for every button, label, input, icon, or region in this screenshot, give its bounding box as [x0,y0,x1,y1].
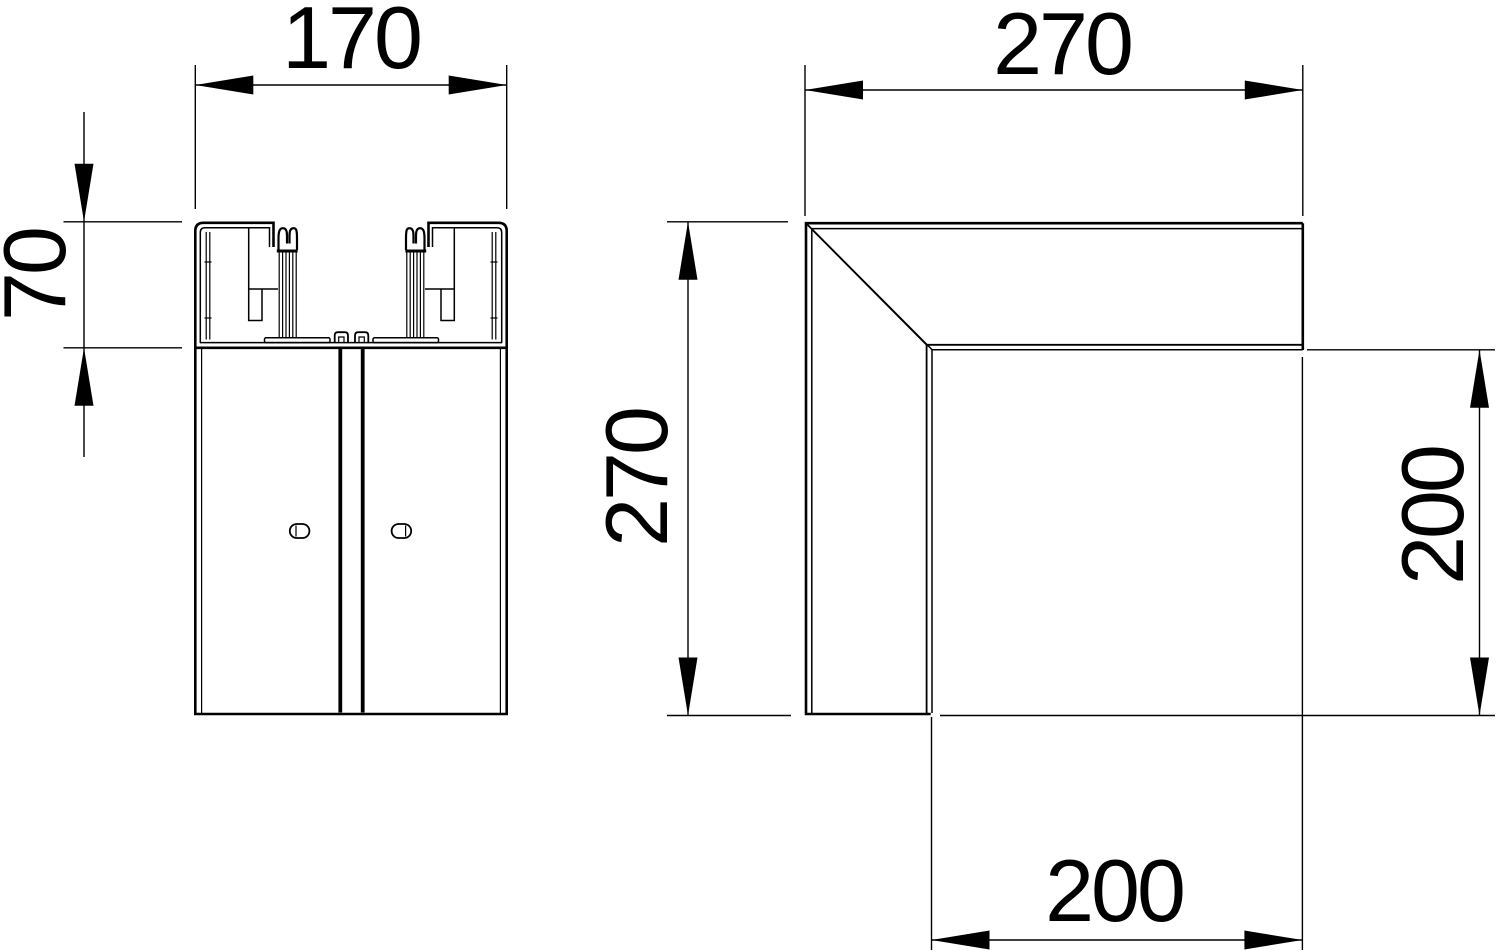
cover-hook-left [279,228,298,250]
technical-drawing-canvas: 170 70 [0,0,1500,950]
dimension-70: 70 [0,112,182,457]
arrowhead-down-icon [1470,658,1489,716]
drawing-svg: 170 70 [0,0,1500,950]
dim-label-270-left: 270 [587,409,686,547]
base-slab-left [265,338,331,343]
side-strip-right [491,232,498,340]
step-rect [249,289,262,321]
profile-cross-section-view: 170 70 [0,0,508,714]
dimension-270-top: 270 [805,0,1303,216]
outer-wall-right [429,223,507,349]
arrowhead-right-icon [1245,81,1303,100]
cover-hook-right [406,228,425,250]
inner-wall-right [433,228,502,343]
arrowhead-right-icon [449,76,507,95]
angle-outline [806,223,1303,714]
screw-slot-right [392,524,412,538]
dimension-170: 170 [195,0,506,209]
arrowhead-down-icon [75,164,94,222]
dimension-270-left: 270 [587,222,791,716]
side-strip-left [205,232,212,340]
arrowhead-up-icon [679,222,698,280]
flat-angle-view: 270 270 [587,0,1495,950]
arrowhead-up-icon [75,348,94,406]
base-slab-right [373,338,439,343]
arrowhead-down-icon [679,658,698,716]
dim-label-200-bottom: 200 [1045,841,1183,940]
slot-outline [392,524,412,538]
arrowhead-left-icon [932,931,990,950]
profile-body [194,349,508,714]
dim-label-270-top: 270 [993,0,1131,93]
screw-slot-left [290,524,310,538]
arrowhead-left-icon [195,76,253,95]
dimension-200-right: 200 [940,350,1495,716]
step-rect [441,289,454,321]
slot-outline [290,524,310,538]
staple-slot [359,337,364,343]
mitre-line-inner [812,229,932,349]
arrowhead-up-icon [1470,350,1489,408]
outer-wall-left [195,223,273,349]
dim-label-70: 70 [0,229,84,321]
outer-edge [806,223,1303,714]
dimension-200-bottom: 200 [932,357,1303,950]
centre-staple-left [335,332,348,342]
profile-top-section [194,223,508,349]
arrowhead-left-icon [805,81,863,100]
dim-label-200-right: 200 [1383,447,1482,585]
arrowhead-right-icon [1244,931,1302,950]
inner-wall-left [200,228,269,343]
staple-slot [339,337,344,343]
rail-stack-right [405,251,426,339]
rail-stack-left [277,251,298,339]
centre-staple-right [355,332,368,342]
dim-label-170: 170 [282,0,420,87]
